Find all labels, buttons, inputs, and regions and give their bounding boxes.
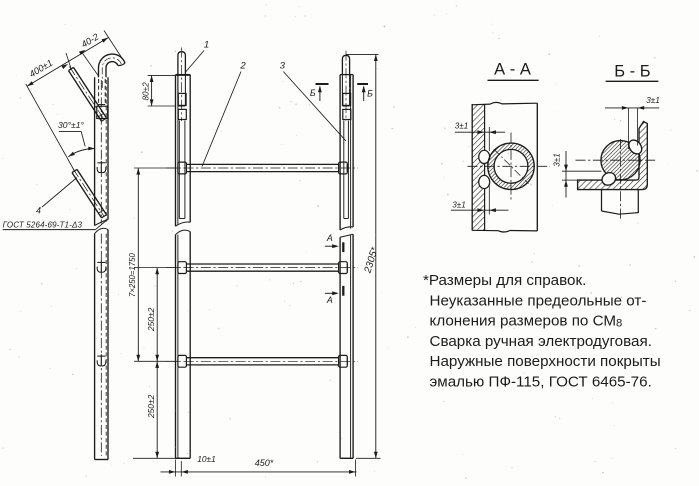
svg-text:Сварка ручная электродуговая.: Сварка ручная электродуговая. (430, 333, 652, 350)
svg-text:2305*: 2305* (362, 245, 381, 275)
svg-text:10±1: 10±1 (197, 454, 216, 464)
svg-text:3: 3 (280, 61, 286, 72)
svg-text:3±1: 3±1 (452, 200, 466, 209)
svg-text:Наружные поверхности покрыты: Наружные поверхности покрыты (430, 353, 661, 370)
svg-text:250±2: 250±2 (146, 307, 156, 332)
svg-text:*Размеры для справок.: *Размеры для справок. (423, 272, 586, 289)
svg-text:эмалью ПФ-115, ГОСТ 6465-76.: эмалью ПФ-115, ГОСТ 6465-76. (430, 374, 652, 391)
svg-text:Б: Б (310, 88, 316, 98)
svg-text:А - А: А - А (494, 61, 531, 79)
svg-text:7×250=1750: 7×250=1750 (128, 253, 137, 297)
svg-text:1: 1 (204, 40, 209, 51)
svg-text:250±2: 250±2 (146, 394, 156, 419)
svg-text:2: 2 (239, 61, 246, 72)
svg-text:450*: 450* (255, 458, 274, 468)
svg-text:400±1: 400±1 (27, 58, 54, 80)
svg-text:А: А (326, 295, 333, 305)
svg-text:клонения размеров по СМ8: клонения размеров по СМ8 (430, 313, 623, 330)
svg-text:А: А (326, 233, 333, 243)
svg-text:80±2: 80±2 (142, 82, 151, 101)
svg-text:40-2: 40-2 (79, 32, 100, 50)
svg-text:ГОСТ 5264-69-Т1-Δ3: ГОСТ 5264-69-Т1-Δ3 (3, 221, 83, 230)
svg-text:Б - Б: Б - Б (614, 63, 650, 81)
svg-text:30°±1°: 30°±1° (58, 120, 84, 130)
svg-text:Неуказанные предеольные от-: Неуказанные предеольные от- (430, 292, 647, 309)
svg-text:3±1: 3±1 (646, 96, 660, 105)
svg-text:3±1: 3±1 (455, 121, 469, 130)
svg-text:4: 4 (36, 206, 41, 216)
svg-text:Б: Б (367, 88, 373, 98)
svg-text:3±1: 3±1 (553, 153, 562, 167)
